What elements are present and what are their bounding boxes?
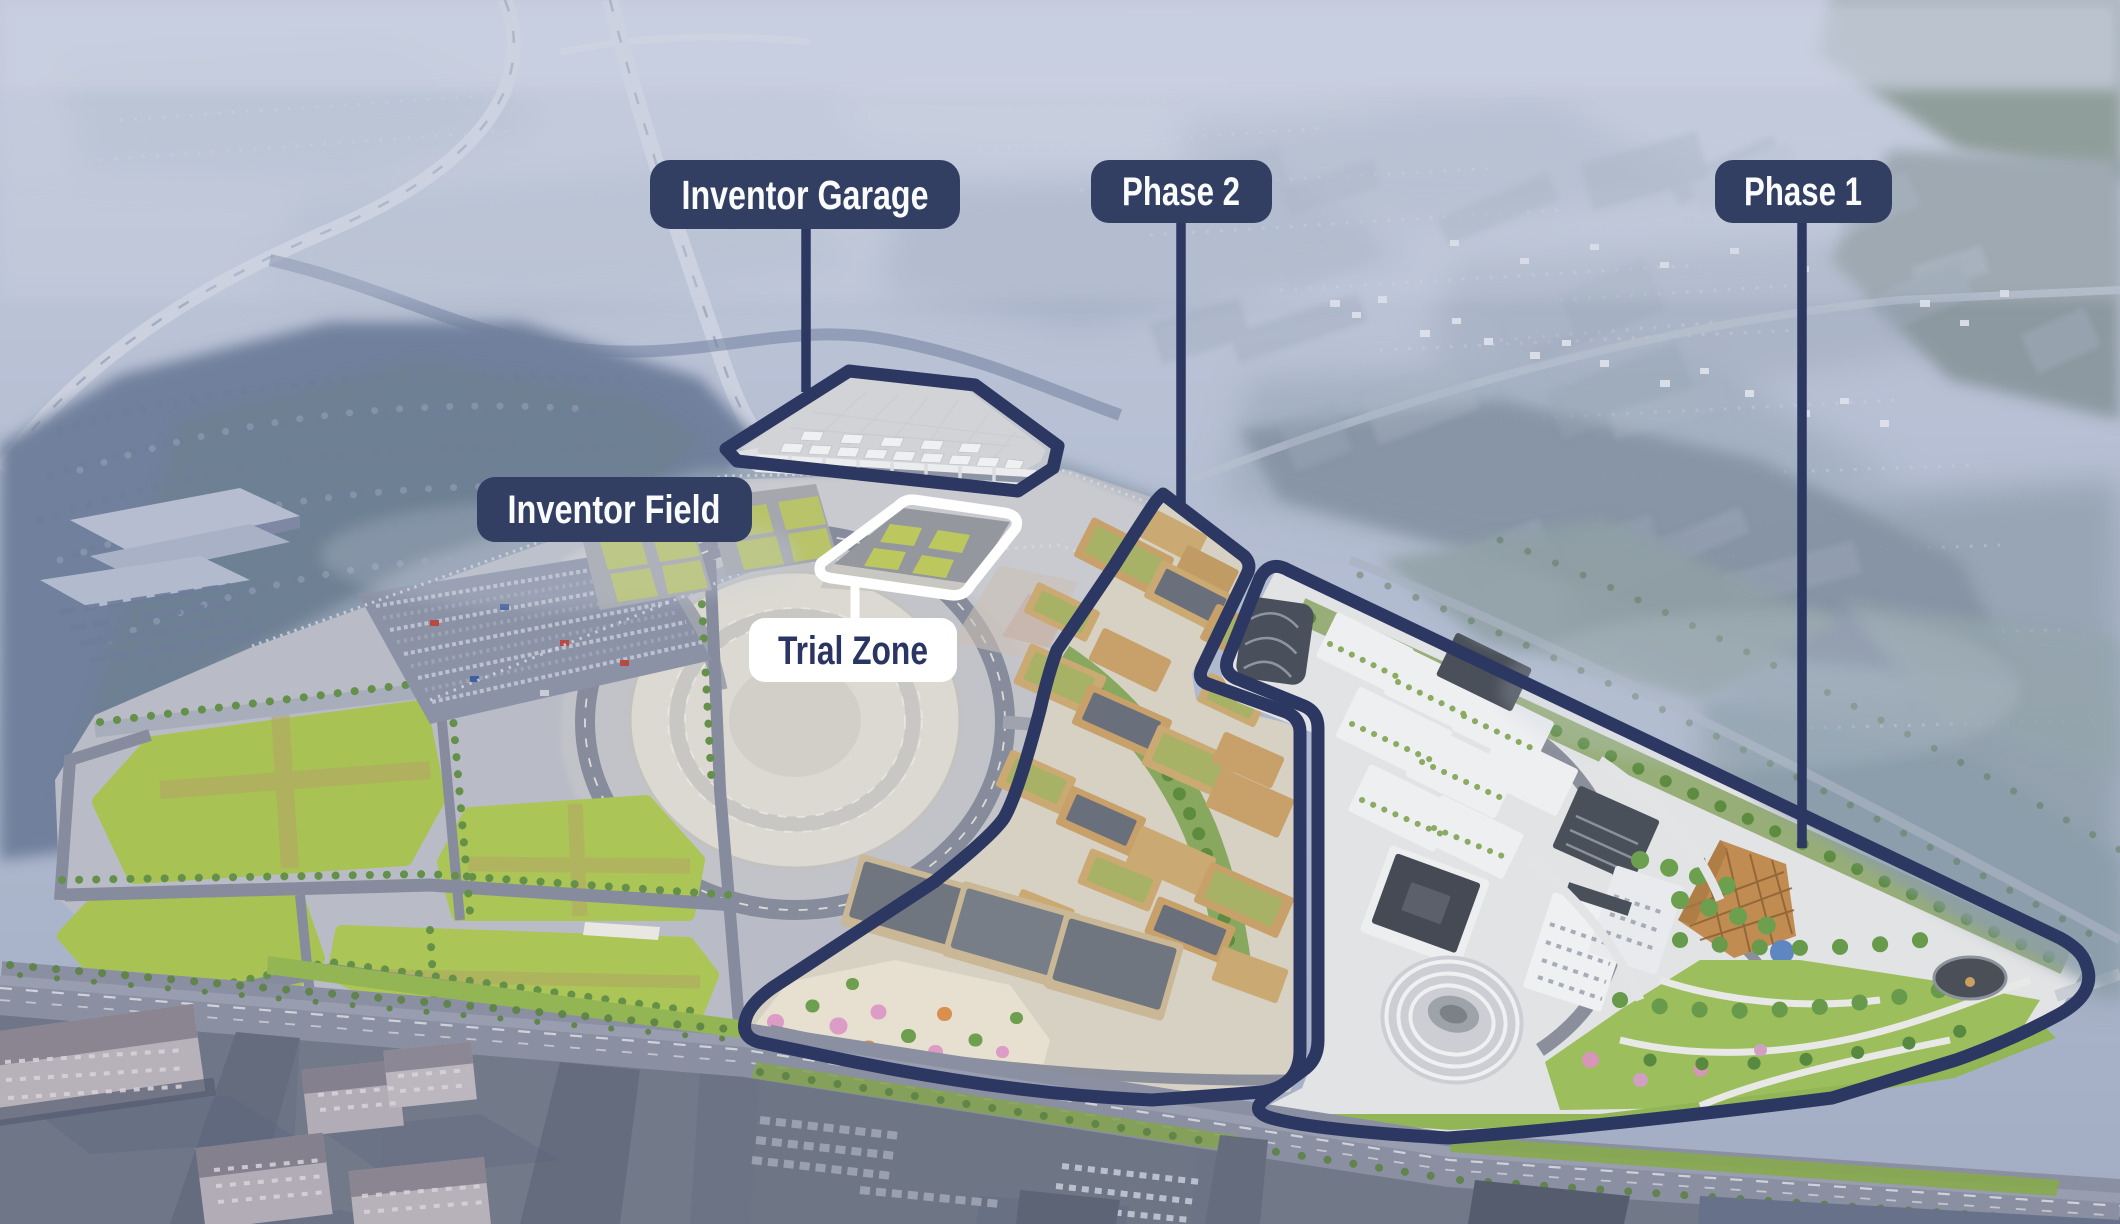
- svg-text:Phase 1: Phase 1: [1744, 170, 1862, 214]
- svg-text:Trial Zone: Trial Zone: [778, 629, 928, 673]
- svg-text:Inventor Field: Inventor Field: [508, 488, 721, 532]
- svg-text:Phase 2: Phase 2: [1122, 170, 1240, 214]
- svg-text:Inventor Garage: Inventor Garage: [682, 172, 929, 218]
